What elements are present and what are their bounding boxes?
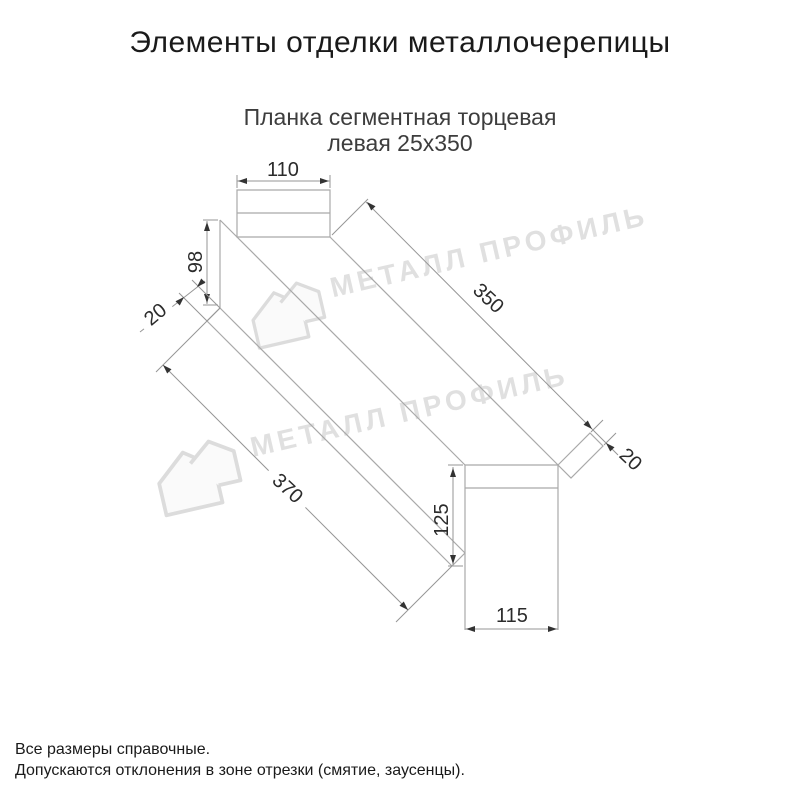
dim-125: 125	[431, 465, 463, 566]
hem-edge	[207, 321, 452, 566]
dim-label-115: 115	[496, 605, 528, 627]
right-hem-cap	[558, 433, 603, 478]
dim-20-right: 20	[592, 429, 646, 475]
technical-drawing: МЕТАЛЛ ПРОФИЛЬ МЕТАЛЛ ПРОФИЛЬ 110	[0, 0, 800, 800]
dim-label-110: 110	[267, 159, 299, 181]
dim-label-20-right: 20	[615, 444, 646, 475]
brand-logo-icon	[152, 436, 244, 515]
footer-note-1: Все размеры справочные.	[15, 739, 785, 760]
watermark-text: МЕТАЛЛ ПРОФИЛЬ	[247, 359, 571, 462]
arrowhead	[204, 222, 210, 231]
dim-label-125: 125	[431, 503, 453, 536]
watermark-2: МЕТАЛЛ ПРОФИЛЬ	[152, 359, 578, 515]
brand-logo-icon	[247, 279, 328, 348]
arrowhead	[320, 178, 329, 184]
arrowhead	[466, 626, 475, 632]
arrowhead	[450, 468, 456, 477]
footer-note-2: Допускаются отклонения в зоне отрезки (с…	[15, 760, 785, 781]
footer-notes: Все размеры справочные. Допускаются откл…	[15, 739, 785, 781]
dim-label-98: 98	[185, 251, 207, 273]
watermark-1: МЕТАЛЛ ПРОФИЛЬ	[246, 200, 656, 348]
dim-115: 115	[465, 605, 558, 632]
arrowhead	[176, 297, 185, 306]
dim-110: 110	[237, 159, 330, 188]
dim-label-350: 350	[468, 279, 507, 318]
arrowhead	[238, 178, 247, 184]
arrowhead	[197, 279, 206, 288]
arrowhead	[548, 626, 557, 632]
page: { "header": { "title": "Элементы отделки…	[0, 0, 800, 800]
arrowhead	[367, 202, 376, 211]
